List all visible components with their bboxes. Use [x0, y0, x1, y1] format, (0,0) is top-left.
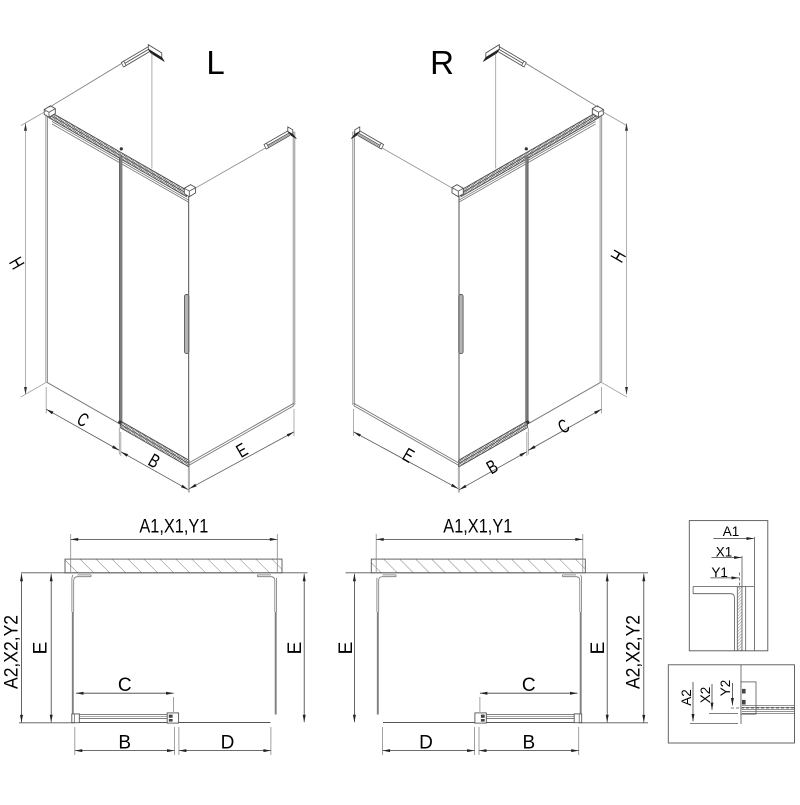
svg-text:A1,X1,Y1: A1,X1,Y1	[443, 517, 512, 538]
svg-text:D: D	[221, 733, 235, 754]
svg-text:C: C	[118, 675, 132, 696]
svg-text:L: L	[206, 44, 224, 81]
svg-text:A2: A2	[679, 689, 694, 706]
svg-text:A1: A1	[723, 524, 740, 539]
svg-text:C: C	[73, 409, 92, 432]
svg-text:E: E	[233, 440, 252, 463]
svg-text:D: D	[419, 733, 433, 754]
svg-text:B: B	[118, 733, 131, 754]
svg-text:E: E	[31, 642, 52, 655]
svg-text:E: E	[588, 642, 609, 655]
svg-text:E: E	[285, 642, 306, 655]
svg-text:E: E	[336, 642, 357, 655]
svg-text:R: R	[430, 44, 454, 81]
svg-text:B: B	[144, 450, 163, 473]
svg-text:C: C	[522, 675, 536, 696]
svg-text:B: B	[522, 733, 535, 754]
svg-text:A1,X1,Y1: A1,X1,Y1	[139, 517, 208, 538]
svg-text:E: E	[399, 445, 418, 468]
svg-text:A2,X2,Y2: A2,X2,Y2	[1, 615, 22, 689]
svg-text:X2: X2	[698, 687, 713, 704]
svg-text:C: C	[555, 416, 574, 439]
svg-text:X1: X1	[716, 545, 733, 560]
svg-text:H: H	[4, 254, 28, 274]
svg-text:Y1: Y1	[711, 565, 728, 580]
svg-text:H: H	[607, 247, 631, 267]
svg-text:A2,X2,Y2: A2,X2,Y2	[624, 615, 645, 689]
svg-text:Y2: Y2	[718, 680, 733, 697]
